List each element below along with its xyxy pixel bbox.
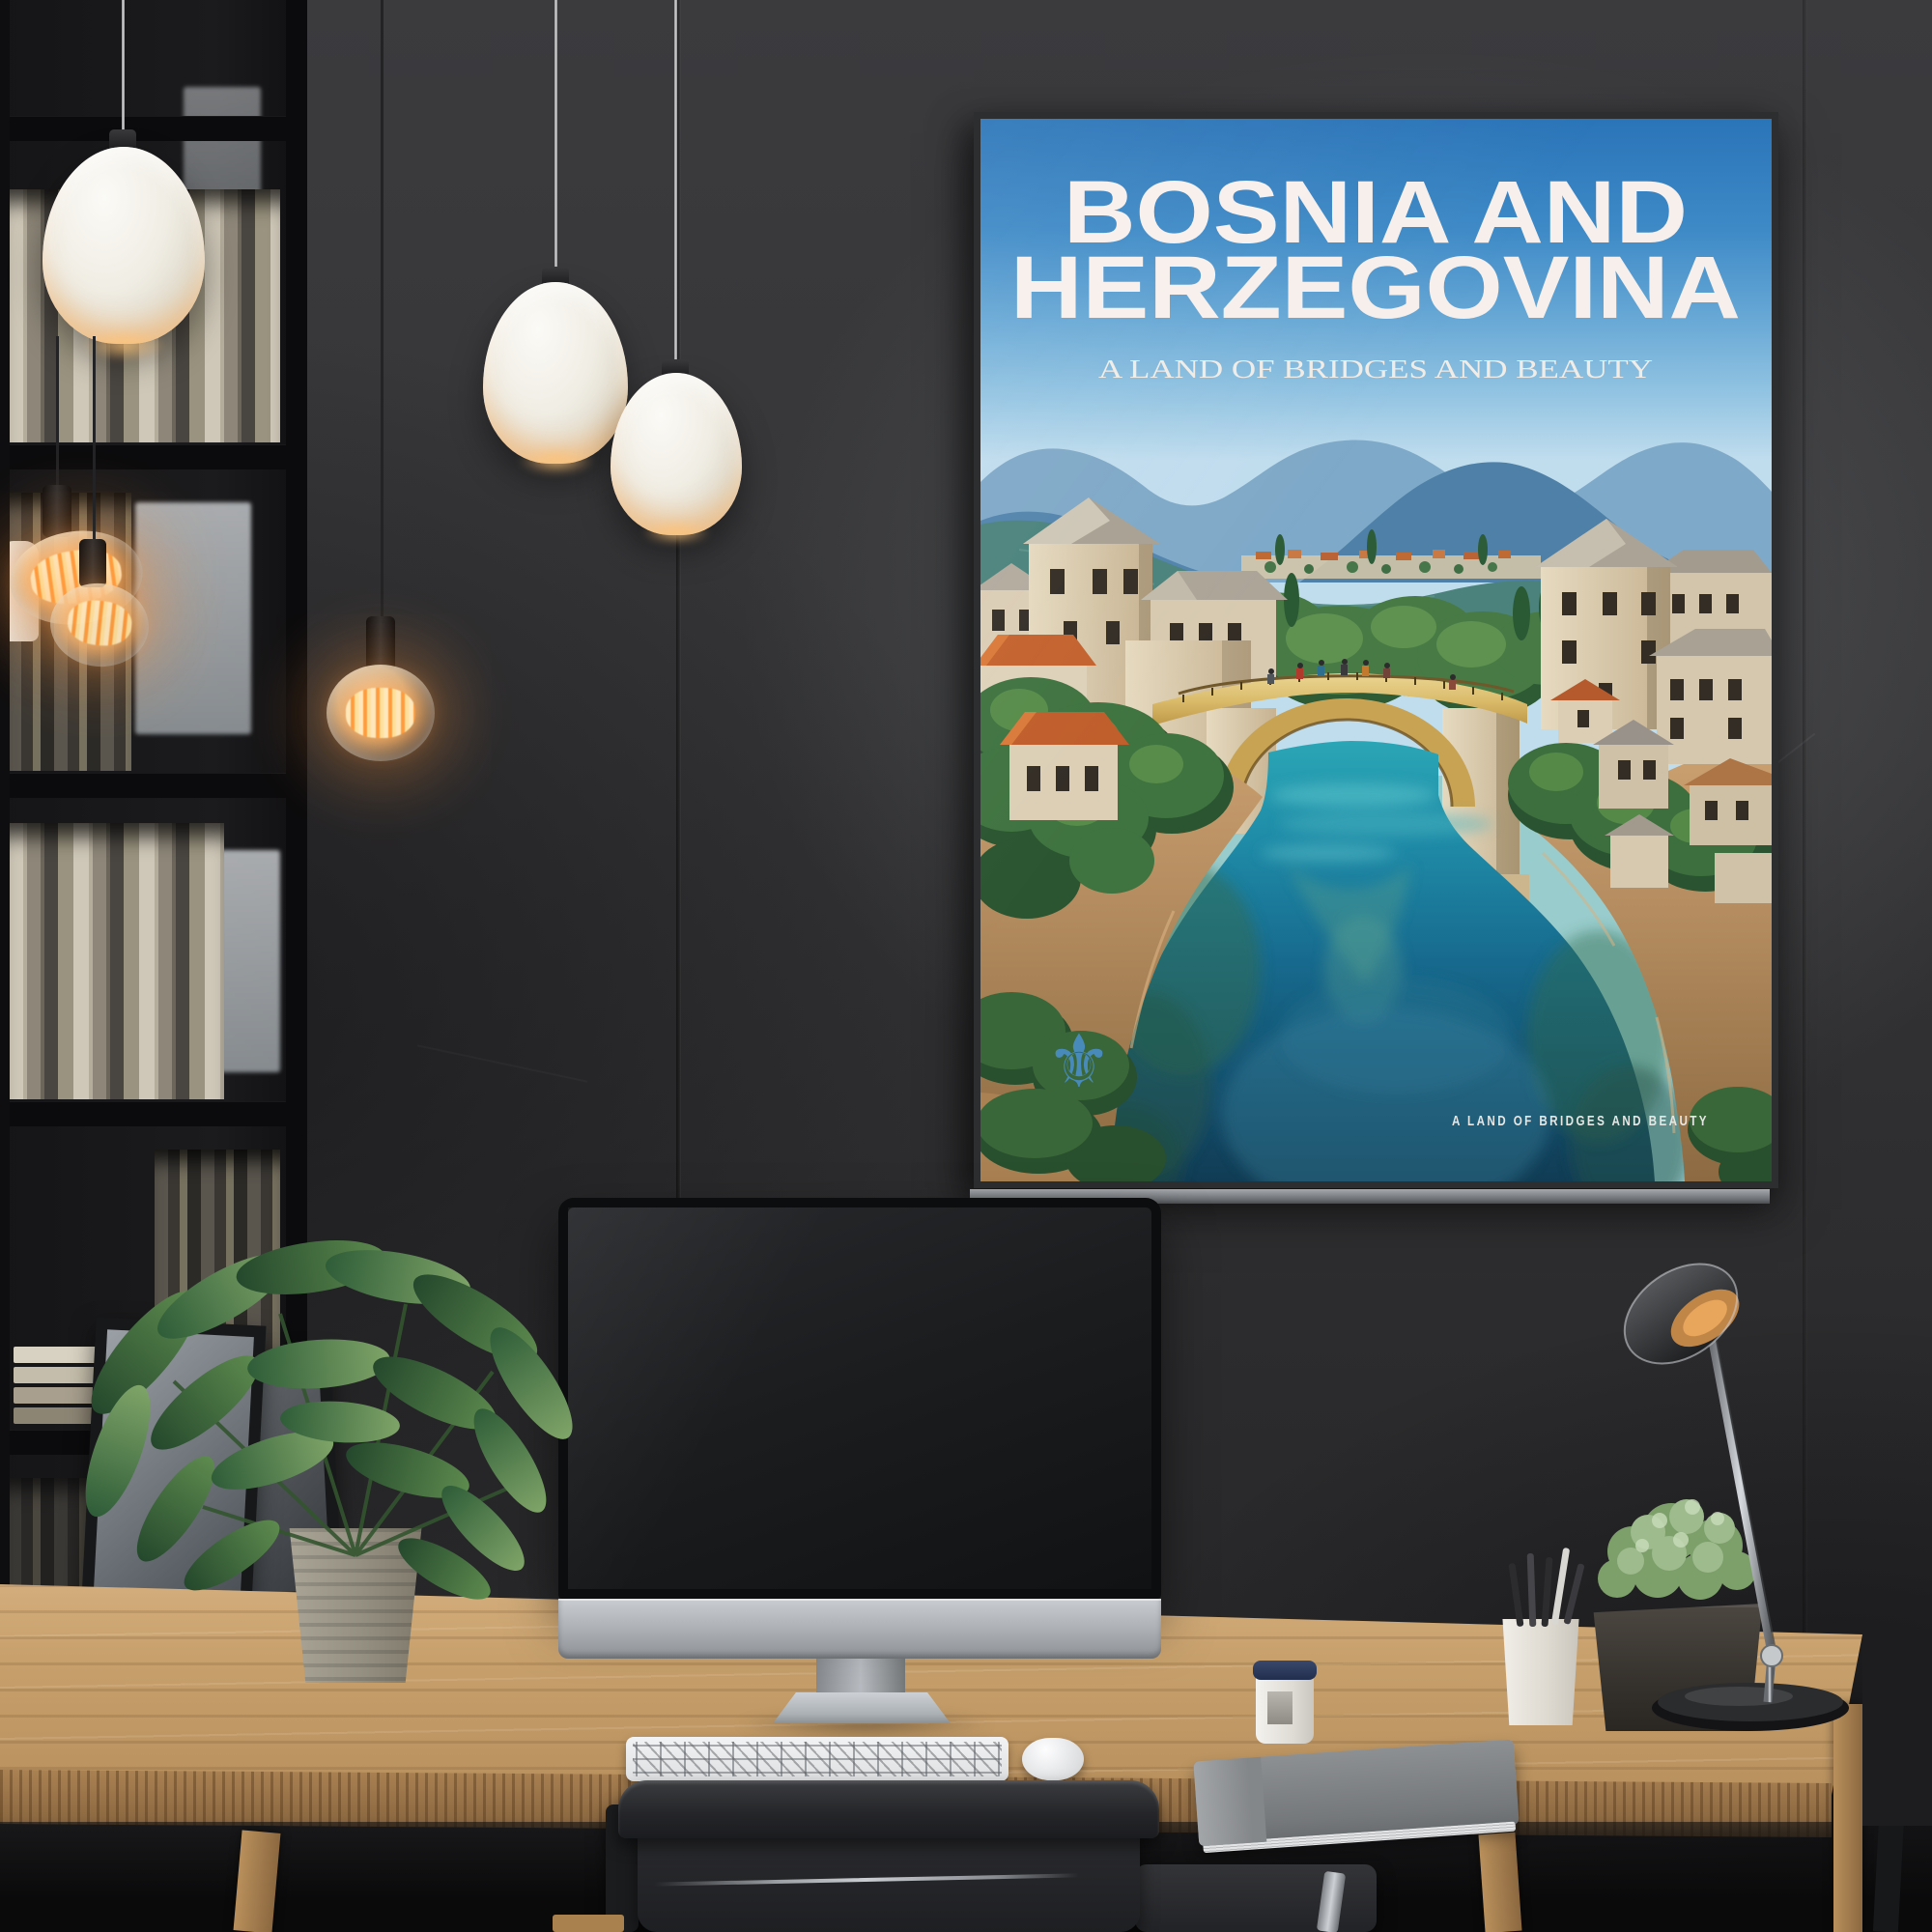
travel-poster: ⚜ A LAND OF BRIDGES AND BEAUTY BOSNIA AN…: [974, 112, 1778, 1188]
lamp-glow: [518, 446, 595, 475]
office-scene: ⚜ A LAND OF BRIDGES AND BEAUTY BOSNIA AN…: [0, 0, 1932, 1932]
imac-monitor-chin: [558, 1599, 1161, 1659]
bulb-socket: [79, 539, 106, 587]
pen: [1541, 1557, 1552, 1627]
bulb-socket: [366, 616, 395, 670]
bulb-cord: [381, 0, 384, 620]
desk-leg: [1478, 1833, 1521, 1932]
bulb-cord: [56, 336, 59, 491]
pendant-cord: [554, 0, 557, 280]
potted-plant-leaves: [29, 1236, 589, 1700]
office-chair: [594, 1776, 1386, 1932]
pendant-cord: [674, 0, 677, 373]
pendant-cord: [122, 0, 125, 145]
poster-artwork: ⚜ A LAND OF BRIDGES AND BEAUTY BOSNIA AN…: [980, 119, 1772, 1181]
chair-top-rail: [618, 1780, 1159, 1838]
keyboard-keys: [633, 1742, 1002, 1776]
lamp-glow: [641, 520, 711, 545]
cup-lid: [1253, 1661, 1317, 1680]
mouse: [1022, 1738, 1084, 1780]
shelf-board: [0, 444, 307, 469]
pen: [1527, 1553, 1537, 1627]
stool-wood: [553, 1915, 624, 1932]
bulb-cord: [93, 336, 96, 543]
desk-lamp: [1584, 1236, 1913, 1739]
bulb-filament: [346, 688, 415, 738]
pen-cup: [1499, 1619, 1582, 1725]
bulb-filament: [66, 598, 133, 649]
shelf-board: [0, 116, 307, 141]
wall-scratch: [417, 1044, 587, 1082]
edison-bulb: [327, 665, 435, 761]
screen-reflection: [568, 1207, 1151, 1589]
pen: [1508, 1563, 1523, 1627]
pendant-lamp: [483, 282, 628, 464]
pendant-lamp: [611, 373, 742, 535]
shelf-board: [0, 1101, 307, 1126]
cup-label: [1267, 1691, 1293, 1724]
shelf-backlight: [135, 502, 251, 734]
monitor-stand-foot: [773, 1692, 951, 1723]
coffee-cup: [1256, 1668, 1314, 1744]
poster-glare: [980, 119, 1772, 1181]
shelf-board: [0, 773, 307, 798]
imac-monitor-screen: [558, 1198, 1161, 1599]
shelf-frame: [0, 0, 10, 1642]
shelf-backlight: [220, 850, 280, 1072]
bulb-socket: [43, 485, 71, 537]
book-row: [8, 823, 224, 1099]
